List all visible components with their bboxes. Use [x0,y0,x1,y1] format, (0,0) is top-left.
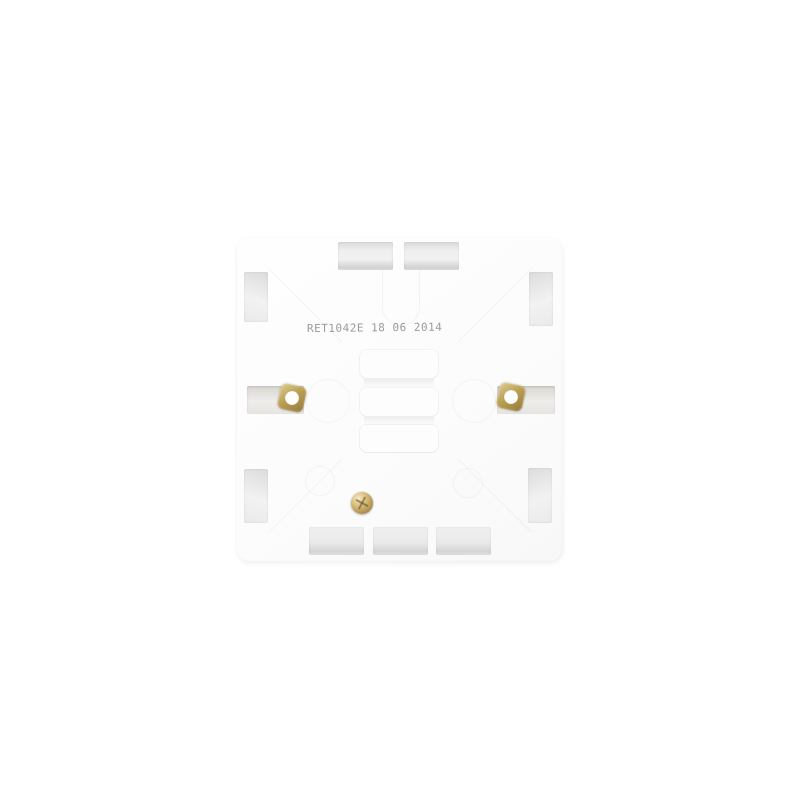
knockout-slot-bottom-right [436,527,491,555]
knockout-slot-bottom-middle [373,527,428,555]
date-stamp-text: RET1042E 18 06 2014 [307,320,507,336]
centre-panel-groove-lower [364,416,434,425]
mould-mark-circle-left [306,379,350,423]
centre-panel-bottom-pad [360,425,438,452]
mould-mark-circle-bottom-right [453,468,483,498]
knockout-slot-top-right [404,242,459,270]
brass-screw [351,492,373,514]
corner-recess-top-right [529,272,553,326]
corner-recess-top-left [244,272,268,322]
centre-panel-middle-pad [360,388,438,416]
mould-mark-circle-right [452,379,496,423]
mould-mark-circle-bottom-left [305,466,335,496]
centre-panel-top-pad [360,350,438,378]
screw-hole-left [284,390,301,407]
knockout-slot-top-left [338,242,393,270]
centre-panel-groove-upper [364,378,434,387]
brass-insert-right [496,382,527,413]
mould-u-mark [382,270,420,326]
corner-recess-bottom-right [528,468,552,523]
brass-insert-left [277,383,308,414]
pattress-back-box: RET1042E 18 06 2014 [237,238,563,562]
knockout-slot-bottom-left [309,527,364,555]
screw-hole-right [503,389,520,406]
product-photo: RET1042E 18 06 2014 [0,0,800,800]
corner-recess-bottom-left [244,469,268,523]
mould-line-bottom-left [268,458,343,533]
